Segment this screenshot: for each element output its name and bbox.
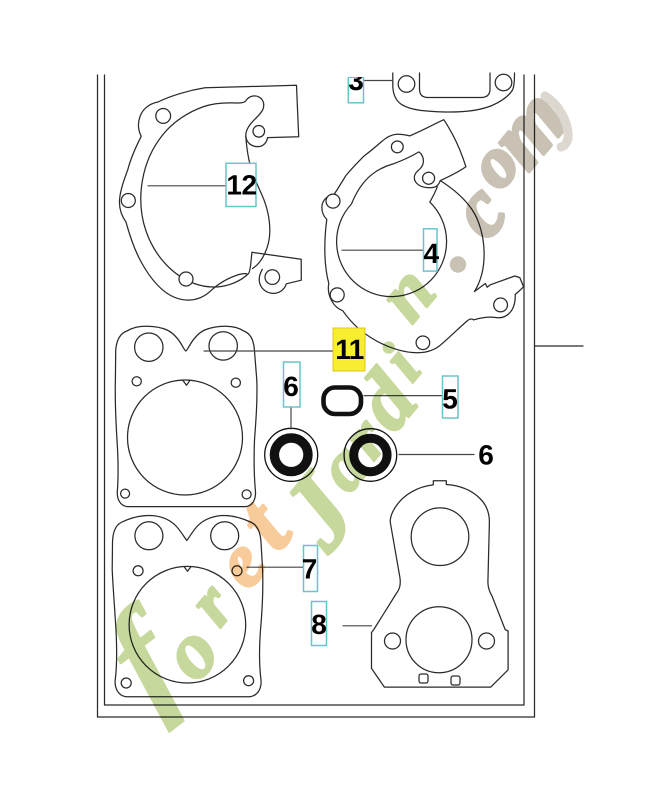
svg-text:12: 12: [226, 170, 256, 201]
svg-text:8: 8: [311, 609, 327, 640]
svg-text:7: 7: [302, 554, 318, 585]
svg-text:5: 5: [442, 384, 458, 415]
svg-text:4: 4: [424, 238, 440, 269]
svg-text:6: 6: [283, 371, 299, 402]
svg-text:6: 6: [478, 440, 494, 471]
